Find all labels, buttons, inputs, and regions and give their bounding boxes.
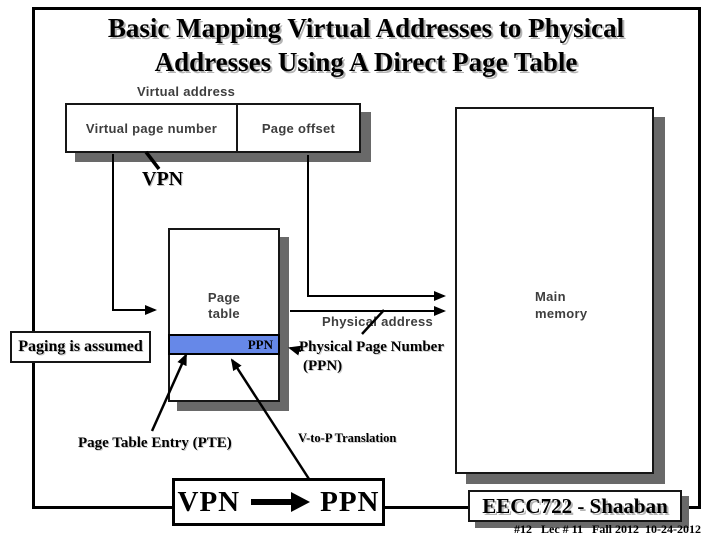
ppn-entry-label: PPN	[248, 337, 273, 353]
slide: Basic Mapping Virtual Addresses to Physi…	[0, 0, 720, 540]
vpn-to-ppn-translation-box: VPN PPN	[172, 478, 385, 526]
ppn-entry-row: PPN	[168, 334, 280, 355]
virtual-address-label: Virtual address	[137, 84, 235, 99]
course-footer-label: EECC722 - Shaaban	[482, 494, 668, 519]
physical-address-label: Physical address	[322, 314, 433, 329]
lecture-info-text: #12 Lec # 11 Fall 2012 10-24-2012	[514, 522, 701, 537]
main-memory-box: Main memory	[455, 107, 654, 474]
v-to-p-translation-label: V-to-P Translation	[298, 431, 396, 446]
page-title: Basic Mapping Virtual Addresses to Physi…	[36, 11, 696, 79]
main-memory-label: Main memory	[535, 288, 587, 322]
page-table-label: Page table	[170, 290, 278, 322]
physical-page-number-label: Physical Page Number (PPN)	[299, 338, 444, 376]
vpn-to-ppn-arrow-icon	[249, 491, 311, 513]
virtual-page-number-cell: Virtual page number	[67, 105, 238, 151]
page-title-line1: Basic Mapping Virtual Addresses to Physi…	[36, 11, 696, 45]
page-title-line2: Addresses Using A Direct Page Table	[36, 45, 696, 79]
translation-from-label: VPN	[178, 486, 241, 519]
page-table-entry-label: Page Table Entry (PTE)	[78, 435, 232, 452]
vpn-label: VPN	[142, 168, 183, 191]
virtual-address-box: Virtual page number Page offset	[65, 103, 361, 153]
translation-to-label: PPN	[320, 486, 379, 519]
course-footer-box: EECC722 - Shaaban	[468, 490, 682, 522]
page-offset-cell: Page offset	[238, 105, 359, 151]
paging-assumed-box: Paging is assumed	[10, 331, 151, 363]
page-table-box: Page table	[168, 228, 280, 402]
